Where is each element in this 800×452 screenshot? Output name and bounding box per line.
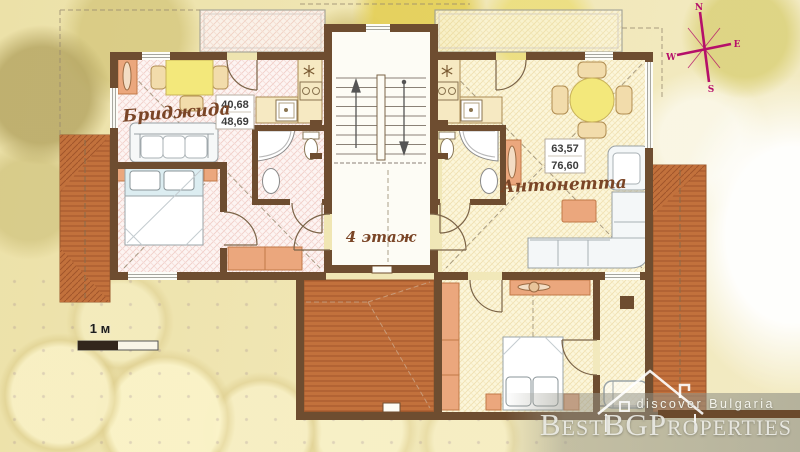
- area-box-right: 63,57 76,60: [545, 139, 585, 173]
- chimney-notch: [383, 403, 400, 412]
- basin: [481, 169, 498, 194]
- floor-label: 4 этаж: [346, 228, 417, 246]
- balcony-top-left: [200, 10, 325, 52]
- scale-bar: 1 м: [78, 321, 158, 350]
- sofa-left: [130, 123, 218, 162]
- compass-north: N: [695, 3, 703, 13]
- bed-left: [112, 166, 217, 245]
- watermark-brand: BestBGProperties: [540, 408, 792, 442]
- compass-rose-icon: N E S W: [665, 3, 741, 95]
- compass-west: W: [665, 53, 677, 63]
- roof-bottom: [304, 280, 434, 412]
- floor-plan: 40,68 48,69 63,57 76,60 Бриджида Антонет…: [0, 0, 800, 452]
- wardrobe-left: [228, 247, 302, 270]
- toilet: [303, 132, 319, 139]
- scale-label: 1 м: [90, 321, 110, 336]
- chimney-notch: [372, 266, 392, 273]
- balcony-top-right: [435, 10, 622, 52]
- dresser-mirror-left: [118, 58, 137, 94]
- area-right-top: 63,57: [551, 143, 579, 155]
- stove: [436, 82, 458, 100]
- floor-plan-listing-image: 40,68 48,69 63,57 76,60 Бриджида Антонет…: [0, 0, 800, 452]
- roof-left: [60, 135, 110, 302]
- coffee-table: [562, 200, 596, 222]
- nightstand: [486, 394, 501, 410]
- compass-south: S: [708, 85, 715, 95]
- stove: [300, 82, 322, 100]
- toilet: [439, 132, 455, 139]
- compass-east: E: [734, 40, 741, 50]
- roof-right: [653, 165, 706, 412]
- area-right-bottom: 76,60: [551, 160, 579, 172]
- basin: [263, 169, 280, 194]
